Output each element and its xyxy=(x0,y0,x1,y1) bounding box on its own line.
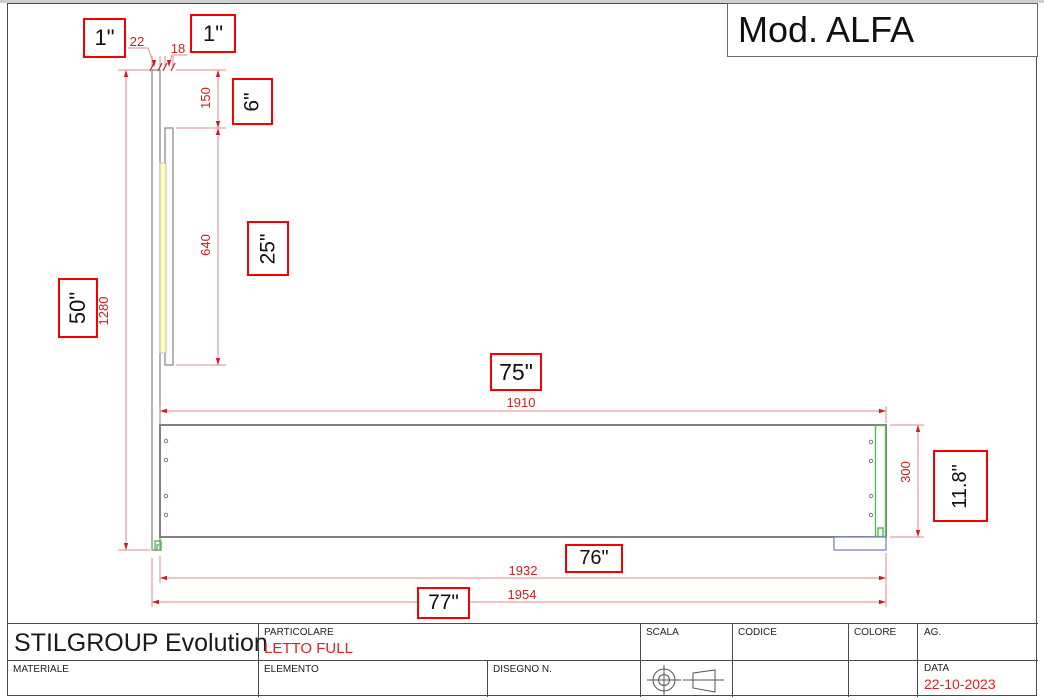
dim-box-118in: 11.8" xyxy=(933,450,988,522)
leader-22 xyxy=(128,48,154,64)
dim-text-640: 640 xyxy=(198,234,213,256)
dim-box-1in-right-label: 1" xyxy=(203,21,223,47)
titleblock-divider-4 xyxy=(732,623,733,697)
titleblock-divider-2 xyxy=(487,660,488,697)
dim-box-76in-label: 76" xyxy=(579,547,608,570)
dim-box-77in-label: 77" xyxy=(428,591,459,615)
titleblock-divider-6 xyxy=(917,623,918,697)
dim-box-77in: 77" xyxy=(417,587,470,619)
dim-box-50in: 50" xyxy=(58,278,98,338)
leader-18 xyxy=(169,55,187,64)
disegno-label: DISEGNO N. xyxy=(493,664,552,675)
bed-leg xyxy=(834,537,886,550)
dim-box-75in-label: 75" xyxy=(499,359,533,386)
dim-text-300: 300 xyxy=(898,461,913,483)
elemento-label: ELEMENTO xyxy=(264,664,319,675)
headboard-panel xyxy=(152,70,160,550)
dim-box-76in: 76" xyxy=(565,544,623,573)
dim-text-18: 18 xyxy=(171,41,185,56)
dim-box-118in-label: 11.8" xyxy=(949,464,972,509)
colore-label: COLORE xyxy=(854,627,896,638)
titleblock-divider-5 xyxy=(848,623,849,697)
particolare-value: LETTO FULL xyxy=(264,640,353,657)
dim-text-22: 22 xyxy=(130,34,144,49)
dim-box-1in-left-label: 1" xyxy=(94,25,114,51)
led-strip xyxy=(160,163,166,353)
dim-text-1280: 1280 xyxy=(96,297,111,326)
dim-box-25in: 25" xyxy=(247,221,289,276)
dim-box-6in: 6" xyxy=(232,78,273,125)
bed-base xyxy=(160,425,886,537)
dim-text-150: 150 xyxy=(198,87,213,109)
codice-label: CODICE xyxy=(738,627,777,638)
data-value: 22-10-2023 xyxy=(924,676,996,692)
model-name: Mod. ALFA xyxy=(738,9,914,51)
dim-box-75in: 75" xyxy=(490,353,542,391)
dim-text-1954: 1954 xyxy=(508,587,537,602)
dim-box-6in-label: 6" xyxy=(240,92,264,111)
titleblock-mid-line xyxy=(7,660,1038,661)
drawing-sheet: 22 18 150 640 1280 1910 300 1932 1954 1"… xyxy=(0,0,1044,700)
titleblock-top-line xyxy=(7,623,1038,624)
bed-side-view-drawing: 22 18 150 640 1280 1910 300 1932 1954 xyxy=(0,0,1044,622)
company-name: STILGROUP Evolution xyxy=(14,629,268,658)
dim-box-25in-label: 25" xyxy=(256,233,280,264)
dim-box-1in-right: 1" xyxy=(190,14,236,53)
ag-label: AG. xyxy=(924,627,941,638)
dim-text-1910: 1910 xyxy=(507,395,536,410)
dim-box-1in-left: 1" xyxy=(83,18,126,58)
data-label: DATA xyxy=(924,663,949,674)
dim-text-1932: 1932 xyxy=(509,563,538,578)
materiale-label: MATERIALE xyxy=(13,664,69,675)
scala-label: SCALA xyxy=(646,627,679,638)
model-title-box: Mod. ALFA xyxy=(727,3,1038,57)
particolare-label: PARTICOLARE xyxy=(264,627,334,638)
dim-box-50in-label: 50" xyxy=(65,292,91,324)
projection-symbol-icon xyxy=(640,660,732,697)
